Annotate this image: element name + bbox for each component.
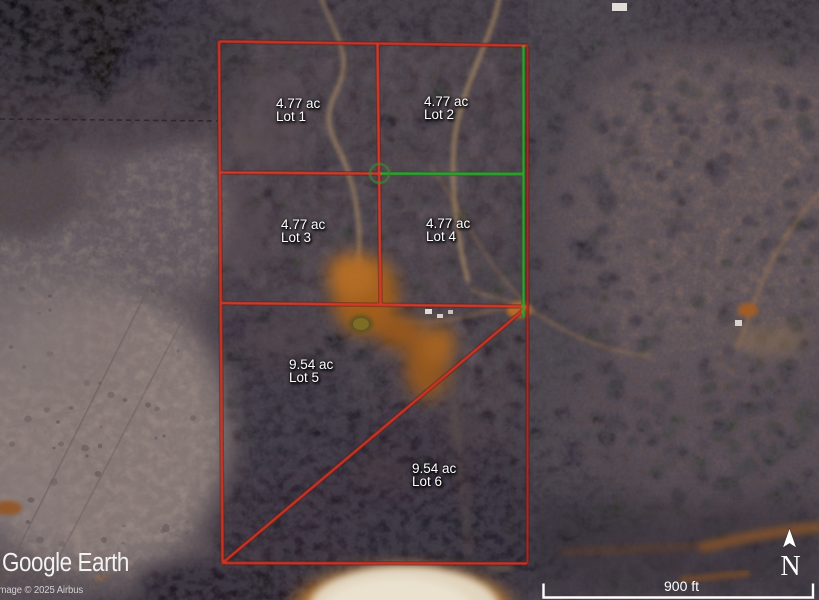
svg-text:N: N bbox=[780, 551, 800, 578]
